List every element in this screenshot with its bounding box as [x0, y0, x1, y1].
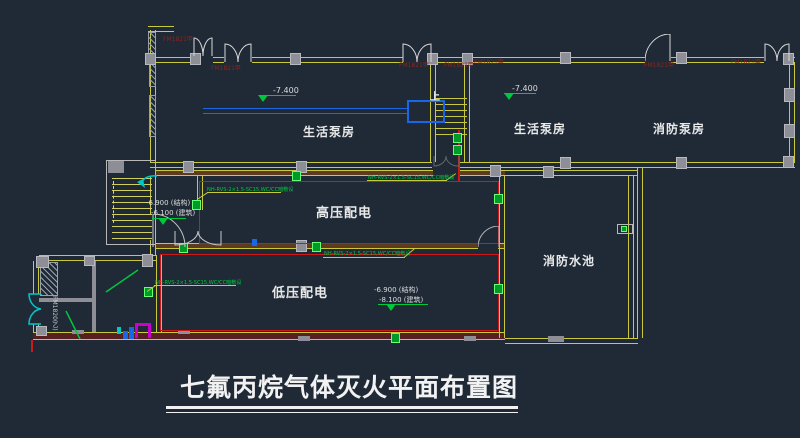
fire-door-label: FM1821甲: [399, 60, 429, 69]
room-label-pump-left: 生活泵房: [303, 123, 355, 140]
single-door-icon: [478, 226, 500, 248]
device-box: [292, 171, 301, 181]
stair-dimension-text: [113, 181, 114, 223]
pipe-line: [203, 108, 407, 109]
wall-segment: [460, 162, 467, 168]
wall-tab: [464, 336, 476, 341]
drawing-title: 七氟丙烷气体灭火平面布置图: [180, 368, 518, 404]
column: [676, 52, 687, 64]
wall-segment: [789, 63, 795, 162]
column: [145, 53, 156, 65]
column: [290, 53, 301, 65]
wall-segment: [150, 57, 193, 63]
protection-zone-outline: [160, 254, 499, 331]
double-door-icon: [174, 230, 222, 250]
stair-up-label: 上: [430, 88, 440, 103]
double-door-icon: [224, 42, 252, 63]
elevation-text: -7.400: [512, 84, 538, 93]
column: [84, 256, 95, 266]
conduit-annotation: NH-RVS-2×1.5-SC15,WC/CC暗敷设: [207, 185, 293, 193]
column: [183, 161, 194, 173]
fire-door-label: FM1821甲: [444, 60, 474, 69]
entry-arrow-icon: [137, 172, 159, 189]
room-label-pump-right: 生活泵房: [514, 120, 566, 137]
wall-tab: [548, 336, 564, 342]
device-box: [494, 284, 503, 294]
leader-line: [323, 257, 405, 258]
device-box: [312, 242, 321, 252]
hatched-wall: [149, 63, 156, 87]
hatched-wall: [149, 95, 156, 137]
room-label-lv: 低压配电: [272, 282, 328, 301]
door-leaf-line: [104, 268, 140, 294]
column: [142, 254, 153, 267]
device-box: [391, 333, 400, 343]
pipe-line: [203, 113, 407, 114]
wall-segment: [467, 162, 795, 168]
equipment-symbol: [135, 326, 138, 338]
fire-door-label: FM1821甲: [644, 60, 674, 69]
conduit-annotation: NH-RVS-2×1.5-SC15,WC/CC暗敷设: [324, 249, 410, 257]
single-door-icon: [645, 34, 672, 62]
partition-wall: [92, 261, 96, 332]
device-box: [453, 133, 462, 143]
double-door-icon: [764, 42, 790, 62]
wall-segment: [505, 338, 638, 344]
wall-segment: [628, 176, 634, 338]
elevation-text: -6.900 (结构): [374, 285, 418, 295]
column: [36, 256, 49, 268]
wall-tab: [298, 336, 310, 341]
device-mark: [129, 327, 134, 339]
fire-door-label: FM1821甲: [163, 34, 193, 43]
room-label-pool: 消防水池: [543, 252, 595, 269]
elevation-triangle-icon: [386, 304, 396, 311]
elevation-triangle-icon: [258, 95, 268, 102]
elevation-text: -6.100 (建筑): [151, 208, 195, 218]
door-leaf-line: [63, 308, 83, 342]
cyan-double-door-icon: [26, 293, 42, 325]
riser-line: [31, 340, 33, 352]
device-box: [621, 226, 627, 232]
column: [490, 165, 501, 177]
column: [560, 157, 571, 169]
column: [784, 124, 795, 138]
title-underline: [166, 406, 518, 409]
equipment-box: [407, 100, 445, 123]
equipment-symbol: [148, 326, 151, 338]
device-mark: [252, 239, 257, 246]
column: [676, 157, 687, 169]
equipment-symbol: [117, 327, 121, 334]
double-door-icon: [193, 36, 213, 57]
device-box: [494, 194, 503, 204]
column: [784, 88, 795, 102]
partition-wall: [39, 298, 92, 302]
device-mark: [123, 331, 128, 339]
column: [36, 326, 47, 336]
column: [560, 52, 571, 64]
wall-segment: [39, 255, 156, 261]
elevation-text: -6.900 (结构): [146, 198, 190, 208]
conduit-annotation: NH-RVS-2×1.5-SC15,WC/CC暗敷设: [368, 173, 454, 181]
room-label-fire-pump: 消防泵房: [653, 120, 705, 137]
elevation-text: -7.400: [273, 86, 299, 95]
wall-segment: [505, 170, 638, 176]
column: [783, 156, 794, 168]
device-box: [453, 145, 462, 155]
floor-plan-canvas: NH-RVS-2×1.5-SC15,WC/CC暗敷设 NH-RVS-2×1.5-…: [0, 0, 800, 438]
elevation-triangle-icon: [504, 93, 514, 100]
fire-door-label: FM1821甲: [731, 57, 761, 66]
fire-door-label: FM1821甲: [211, 63, 241, 72]
double-door-icon: [433, 155, 460, 168]
elevation-triangle-icon: [158, 218, 168, 225]
conduit-annotation: NH-RVS-2×1.5-SC15,WC/CC暗敷设: [155, 278, 241, 286]
fire-door-label: FM1821甲: [474, 57, 504, 66]
wall-segment: [33, 332, 505, 340]
fire-door-label-vertical: FM1820(乙): [50, 296, 59, 331]
title-underline: [166, 412, 518, 413]
wall-segment: [252, 57, 403, 63]
column: [543, 166, 554, 178]
room-label-hv: 高压配电: [316, 202, 372, 221]
wall-segment: [637, 168, 643, 338]
